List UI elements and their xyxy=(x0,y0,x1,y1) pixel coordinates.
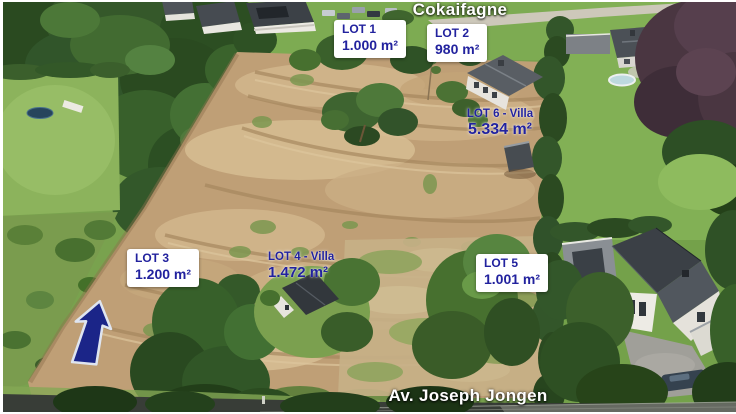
left-garden xyxy=(0,62,130,216)
lot-6-name: LOT 6 - Villa xyxy=(452,108,548,121)
lot-2-label-box: LOT 2 980 m² xyxy=(427,24,487,62)
lot-5-label-box: LOT 5 1.001 m² xyxy=(476,254,548,292)
lot-3-name: LOT 3 xyxy=(135,251,191,266)
lot-1-area: 1.000 m² xyxy=(342,37,398,55)
aerial-photo: Cokaifagne Av. Joseph Jongen LOT 1 1.000… xyxy=(0,0,736,414)
lot-1-label-box: LOT 1 1.000 m² xyxy=(334,20,406,58)
lot-5-area: 1.001 m² xyxy=(484,271,540,289)
lot-1-name: LOT 1 xyxy=(342,22,398,37)
lot-5-name: LOT 5 xyxy=(484,256,540,271)
lot-4-area: 1.472 m² xyxy=(268,264,348,281)
lot-4-name: LOT 4 - Villa xyxy=(268,251,348,264)
lot-3-label-box: LOT 3 1.200 m² xyxy=(127,249,199,287)
trampoline xyxy=(27,108,53,119)
lot-6-area: 5.334 m² xyxy=(452,121,548,139)
lot-4-label: LOT 4 - Villa 1.472 m² xyxy=(268,251,348,281)
lot-6-label: LOT 6 - Villa 5.334 m² xyxy=(452,108,548,140)
direction-arrow-icon xyxy=(63,296,125,374)
pool xyxy=(609,75,635,86)
street-label-cokaifagne: Cokaifagne xyxy=(380,0,540,20)
lot-2-name: LOT 2 xyxy=(435,26,479,41)
lot-2-area: 980 m² xyxy=(435,41,479,59)
street-label-av-joseph-jongen: Av. Joseph Jongen xyxy=(388,386,548,406)
lot-3-area: 1.200 m² xyxy=(135,266,191,284)
